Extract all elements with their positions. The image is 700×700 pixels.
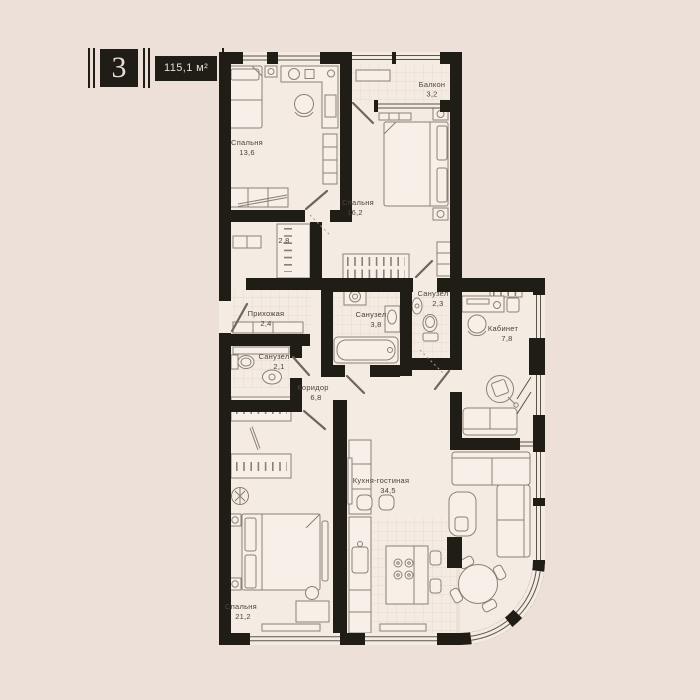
kitchen-island-icon	[386, 546, 428, 604]
coffee-table-icon	[449, 492, 476, 536]
dining-table-icon	[459, 565, 498, 604]
svg-text:Прихожая: Прихожая	[248, 309, 285, 318]
radiator-icon	[380, 624, 426, 631]
badge-decor-line	[222, 48, 224, 88]
shelf-icon	[437, 242, 451, 276]
plan-badge: 3 115,1 м²	[88, 48, 224, 88]
svg-text:3,2: 3,2	[426, 90, 437, 99]
svg-text:2,1: 2,1	[273, 362, 284, 371]
toilet-icon	[231, 355, 238, 369]
kitchen-counter-icon	[349, 517, 371, 633]
balcony-furniture	[356, 70, 390, 81]
sofa-icon	[452, 452, 530, 485]
bench-icon	[322, 521, 328, 581]
room-count-badge: 3	[100, 49, 138, 87]
dresser-icon	[228, 188, 288, 207]
rack-icon	[231, 454, 291, 478]
radiator-icon	[262, 624, 320, 631]
sink-icon	[263, 370, 282, 384]
office-chair-icon	[295, 95, 314, 114]
svg-text:Коридор: Коридор	[297, 383, 328, 392]
office-chair-icon	[468, 315, 486, 333]
svg-text:2,8: 2,8	[278, 236, 289, 245]
svg-text:16,2: 16,2	[347, 208, 363, 217]
room-label-closet: 2,8	[278, 236, 289, 245]
badge-decor-line	[143, 48, 145, 88]
rack-icon	[277, 224, 310, 278]
svg-text:Санузел: Санузел	[418, 289, 449, 298]
vanity-icon	[296, 601, 329, 622]
svg-text:3,8: 3,8	[370, 320, 381, 329]
total-area-value: 115,1 м²	[164, 62, 208, 74]
chair-icon	[430, 551, 441, 565]
radiator-icon	[379, 113, 411, 120]
sconce-icon	[265, 66, 277, 77]
svg-text:2,3: 2,3	[432, 299, 443, 308]
svg-text:Спальня: Спальня	[231, 138, 263, 147]
bar-stool-icon	[357, 495, 372, 510]
floorplan-drawing: Спальня 13,6 Балкон 3,2 Спальня 16,2 2,8…	[0, 0, 700, 700]
svg-text:Балкон: Балкон	[419, 80, 446, 89]
svg-text:6,8: 6,8	[310, 393, 321, 402]
badge-decor-line	[93, 48, 95, 88]
room-count-number: 3	[112, 53, 127, 83]
total-area-badge: 115,1 м²	[155, 56, 217, 81]
tv-icon	[348, 458, 352, 504]
svg-text:21,2: 21,2	[235, 612, 251, 621]
svg-text:Санузел: Санузел	[356, 310, 387, 319]
badge-decor-line	[88, 48, 90, 88]
svg-text:Кухня-гостиная: Кухня-гостиная	[353, 476, 410, 485]
bathtub-icon	[334, 337, 398, 363]
svg-text:13,6: 13,6	[239, 148, 255, 157]
bar-stool-icon	[379, 495, 394, 510]
svg-text:7,8: 7,8	[501, 334, 512, 343]
svg-text:Кабинет: Кабинет	[488, 324, 519, 333]
svg-text:2,4: 2,4	[260, 319, 271, 328]
sink-icon	[412, 298, 422, 314]
svg-text:Спальня: Спальня	[225, 602, 257, 611]
nightstand-icon	[433, 208, 448, 220]
shelf-icon	[323, 134, 337, 184]
sofa-chaise-icon	[497, 485, 530, 557]
svg-text:34,5: 34,5	[380, 486, 396, 495]
badge-decor-line	[148, 48, 150, 88]
floorplan-page: Спальня 13,6 Балкон 3,2 Спальня 16,2 2,8…	[0, 0, 700, 700]
svg-text:Спальня: Спальня	[342, 198, 374, 207]
svg-text:Санузел: Санузел	[259, 352, 290, 361]
stool-icon	[306, 587, 319, 600]
chair-icon	[430, 579, 441, 593]
planter-icon	[356, 70, 390, 81]
